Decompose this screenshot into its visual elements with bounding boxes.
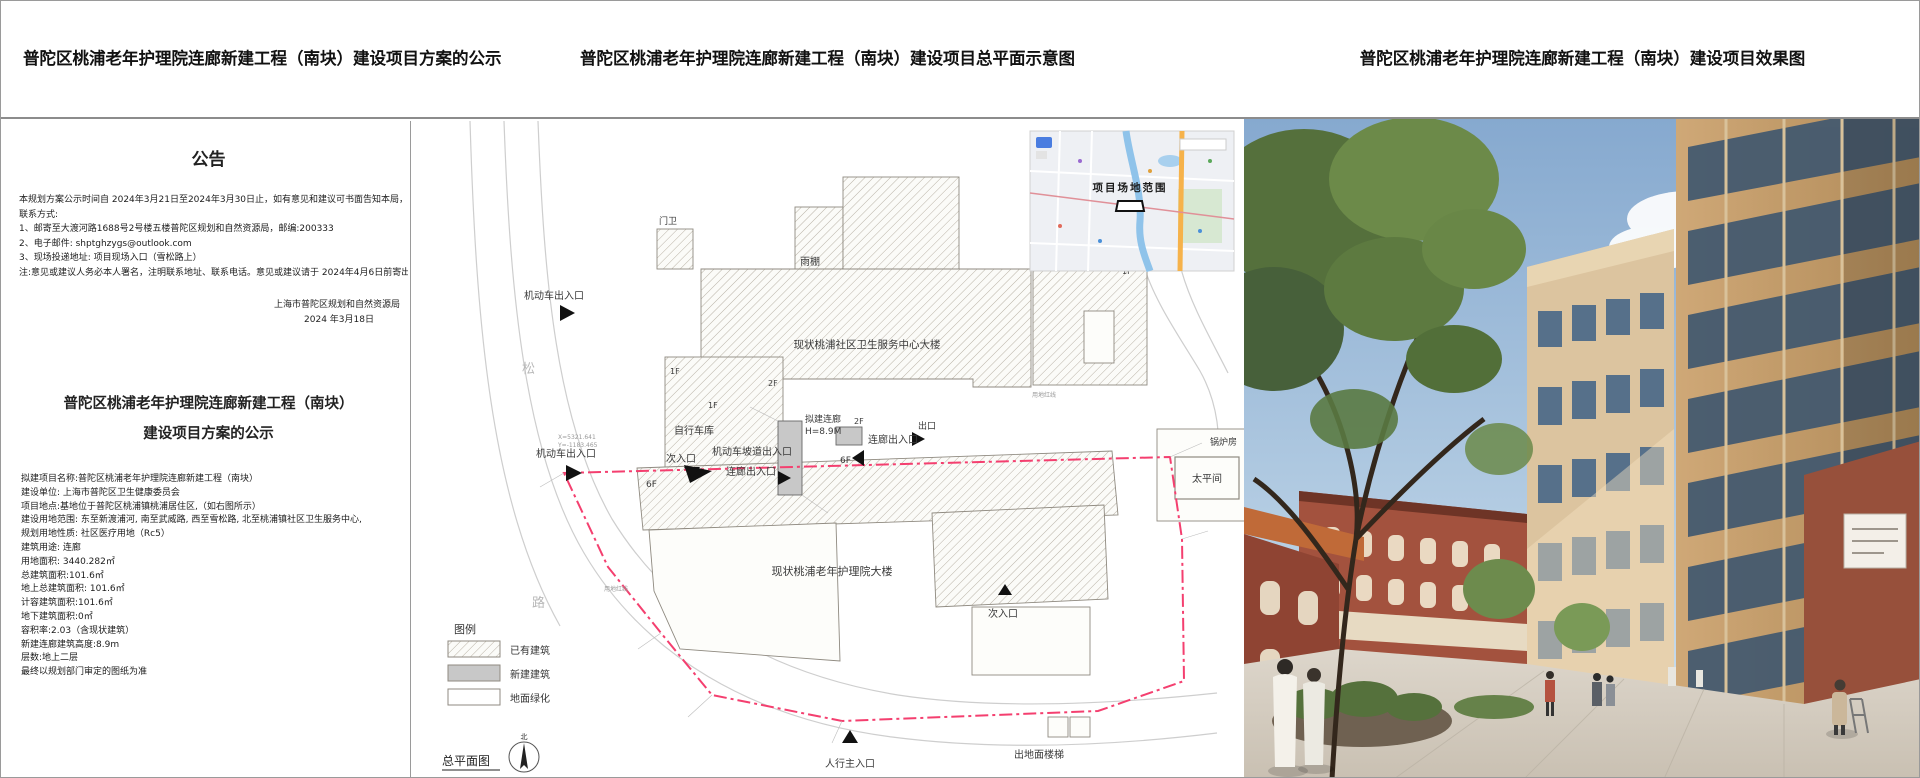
map-search-box [1180, 139, 1226, 150]
label-main-entrance: 人行主入口 [825, 757, 875, 770]
project-title: 普陀区桃浦老年护理院连廊新建工程（南块） 建设项目方案的公示 [7, 389, 410, 449]
label-red-line-a: 用地红线 [1032, 391, 1056, 399]
plan-legend: 图例 已有建筑 新建建筑 地面绿化 [448, 622, 550, 705]
detail-line: 规划用地性质: 社区医疗用地（Rc5） [21, 528, 406, 542]
label-ground-stairs: 出地面楼梯 [1014, 748, 1064, 761]
label-bike-garage: 自行车库 [674, 424, 714, 437]
label-canopy: 雨棚 [800, 255, 820, 268]
notice-line: 2、电子邮件: shptghzygs@outlook.com [19, 237, 408, 252]
rendering-panel [1244, 119, 1920, 778]
notice-board: 普陀区桃浦老年护理院连廊新建工程（南块）建设项目方案的公示 普陀区桃浦老年护理院… [0, 0, 1920, 778]
project-title-line2: 建设项目方案的公示 [7, 419, 410, 449]
label-new-corridor-height: H=8.9M [805, 427, 841, 437]
label-2f-a: 2F [768, 379, 778, 388]
detail-line: 地下建筑面积:0㎡ [21, 611, 406, 625]
notice-line: 本规划方案公示时间自 2024年3月21日至2024年3月30日止，如有意见和建… [19, 193, 408, 208]
legend-label-existing: 已有建筑 [510, 644, 550, 657]
detail-line: 项目地点:基地位于普陀区桃浦镇桃浦居住区,（如右图所示） [21, 501, 406, 515]
detail-line: 用地面积: 3440.282㎡ [21, 556, 406, 570]
detail-line: 建设单位: 上海市普陀区卫生健康委员会 [21, 487, 406, 501]
label-red-line-b: 用地红线 [604, 585, 628, 593]
header-siteplan-title: 普陀区桃浦老年护理院连廊新建工程（南块）建设项目总平面示意图 [411, 45, 1244, 69]
coord-callout-x: X=5321.641 [558, 434, 596, 441]
detail-line: 总建筑面积:101.6㎡ [21, 570, 406, 584]
label-health-center: 现状桃浦社区卫生服务中心大楼 [794, 338, 941, 351]
detail-line: 计容建筑面积:101.6㎡ [21, 597, 406, 611]
legend-title: 图例 [454, 622, 476, 636]
label-corridor-exit-1: 连廊出入口 [868, 433, 918, 446]
detail-line: 新建连廊建筑高度:8.9m [21, 639, 406, 653]
legend-swatch-existing [448, 641, 500, 657]
label-ramp-entrance: 机动车坡道出入口 [712, 445, 792, 458]
map-layer-button [1036, 151, 1047, 159]
label-2f-b: 2F [854, 417, 864, 426]
label-1f-b: 1F [708, 401, 718, 410]
header-rendering-title: 普陀区桃浦老年护理院连廊新建工程（南块）建设项目效果图 [1244, 45, 1920, 69]
siteplan-panel: 机动车出入口 门卫 雨棚 1F 1F 2F 1F 自行车库 现状桃浦社区卫生服务… [412, 121, 1244, 777]
legend-swatch-greening [448, 689, 500, 705]
location-map-inset: 项目场地范围 [1030, 131, 1234, 271]
map-site-label: 项目场地范围 [1093, 181, 1168, 194]
project-details: 拟建项目名称:普陀区桃浦老年护理院连廊新建工程（南块） 建设单位: 上海市普陀区… [21, 473, 406, 680]
label-vehicle-entrance-1: 机动车出入口 [524, 289, 584, 302]
label-new-corridor: 拟建连廊 [805, 413, 841, 425]
notice-signature: 上海市普陀区规划和自然资源局 [274, 297, 400, 310]
legend-label-new: 新建建筑 [510, 668, 550, 681]
label-exit: 出口 [918, 420, 936, 432]
label-6f-b: 6F [840, 456, 851, 466]
plan-caption: 总平面图 [442, 754, 490, 768]
label-corridor-exit-2: 连廊出入口 [726, 465, 776, 478]
small-tree [1463, 559, 1535, 619]
map-zoom-button [1036, 137, 1052, 148]
detail-line: 容积率:2.03（含现状建筑） [21, 625, 406, 639]
road-name-char-lu: 路 [532, 595, 545, 611]
brick-wall-right [1804, 441, 1920, 704]
detail-line: 最终以规划部门审定的图纸为准 [21, 666, 406, 680]
map-highway [1180, 131, 1182, 271]
north-label: 北 [521, 733, 528, 741]
notice-panel: 公告 本规划方案公示时间自 2024年3月21日至2024年3月30日止，如有意… [7, 121, 411, 777]
label-1f-a: 1F [670, 367, 680, 376]
legend-label-greening: 地面绿化 [510, 692, 550, 705]
label-boiler: 锅炉房 [1210, 436, 1237, 448]
label-6f-a: 6F [646, 480, 657, 490]
site-plan-drawing: 机动车出入口 门卫 雨棚 1F 1F 2F 1F 自行车库 现状桃浦社区卫生服务… [412, 121, 1244, 777]
detail-line: 拟建项目名称:普陀区桃浦老年护理院连廊新建工程（南块） [21, 473, 406, 487]
notice-line: 3、现场投递地址: 项目现场入口（雪松路上） [19, 251, 408, 266]
label-secondary-entrance-1: 次入口 [666, 452, 696, 465]
notice-line: 联系方式: [19, 208, 408, 223]
label-mortuary: 太平间 [1192, 472, 1222, 485]
label-nursing-home: 现状桃浦老年护理院大楼 [772, 564, 893, 578]
road-name-char-song: 松 [522, 362, 535, 377]
notice-body: 本规划方案公示时间自 2024年3月21日至2024年3月30日止，如有意见和建… [19, 193, 408, 280]
small-tree [1554, 603, 1610, 651]
plan-caption-group: 总平面图 北 [442, 733, 539, 772]
notice-line: 注:意见或建议人务必本人署名，注明联系地址、联系电话。意见或建议请于 2024年… [19, 266, 408, 281]
notice-heading: 公告 [7, 145, 410, 170]
detail-line: 建筑用途: 连廊 [21, 542, 406, 556]
notice-date: 2024 年3月18日 [304, 312, 374, 325]
coord-callout-y: Y=-1183.465 [557, 442, 598, 449]
map-site-outline [1116, 201, 1144, 211]
notice-line: 1、邮寄至大渡河路1688号2号楼五楼普陀区规划和自然资源局，邮编:200333 [19, 222, 408, 237]
legend-swatch-new [448, 665, 500, 681]
rendering-image [1244, 119, 1920, 778]
detail-line: 地上总建筑面积: 101.6㎡ [21, 583, 406, 597]
header-strip: 普陀区桃浦老年护理院连廊新建工程（南块）建设项目方案的公示 普陀区桃浦老年护理院… [1, 1, 1920, 119]
label-gate: 门卫 [659, 215, 677, 227]
label-secondary-entrance-2: 次入口 [988, 607, 1018, 620]
detail-line: 建设用地范围: 东至新渡浦河, 南至武威路, 西至雪松路, 北至桃浦镇社区卫生服… [21, 514, 406, 528]
detail-line: 层数:地上二层 [21, 652, 406, 666]
project-title-line1: 普陀区桃浦老年护理院连廊新建工程（南块） [7, 389, 410, 419]
